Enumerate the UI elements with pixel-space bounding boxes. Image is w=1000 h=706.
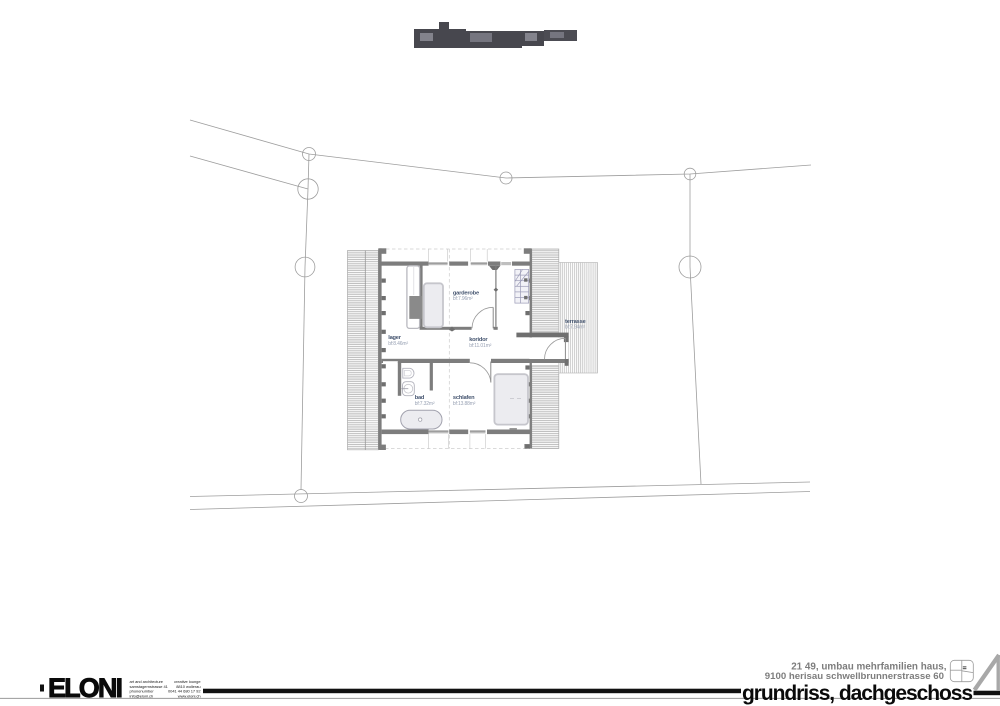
svg-text:info@eloni.ch: info@eloni.ch (130, 693, 154, 698)
svg-text:ELONI: ELONI (48, 673, 123, 703)
svg-text:bf:7.96m²: bf:7.96m² (453, 296, 473, 302)
svg-text:bf:13.88m²: bf:13.88m² (453, 401, 476, 407)
svg-text:bf:11.01m²: bf:11.01m² (469, 343, 492, 349)
svg-text:bf:8.46m²: bf:8.46m² (388, 341, 408, 347)
svg-text:bf:7.32m²: bf:7.32m² (415, 401, 435, 407)
svg-text:bf:7.94m²: bf:7.94m² (565, 325, 585, 331)
svg-text:grundriss, dachgeschoss: grundriss, dachgeschoss (742, 682, 972, 705)
svg-text:9100 herisau schwellbrunnerstr: 9100 herisau schwellbrunnerstrasse 60 (765, 671, 944, 682)
svg-text:www.eloni.ch: www.eloni.ch (178, 693, 201, 698)
